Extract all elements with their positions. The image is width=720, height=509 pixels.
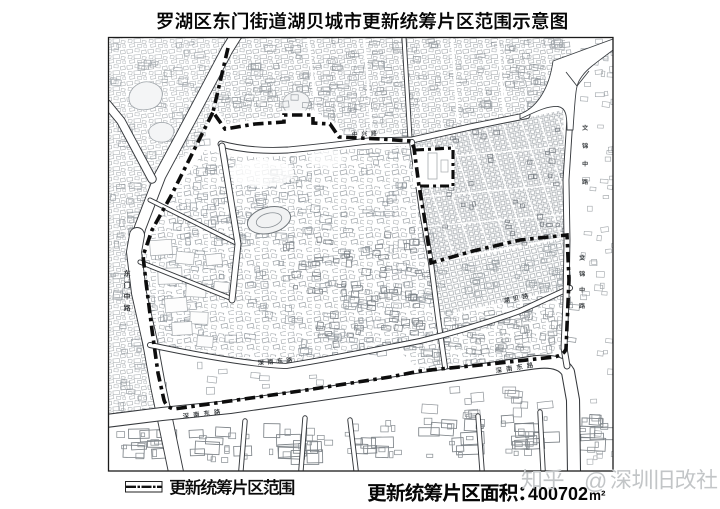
svg-text:@: @ bbox=[584, 468, 607, 494]
svg-text:400702: 400702 bbox=[528, 484, 588, 504]
